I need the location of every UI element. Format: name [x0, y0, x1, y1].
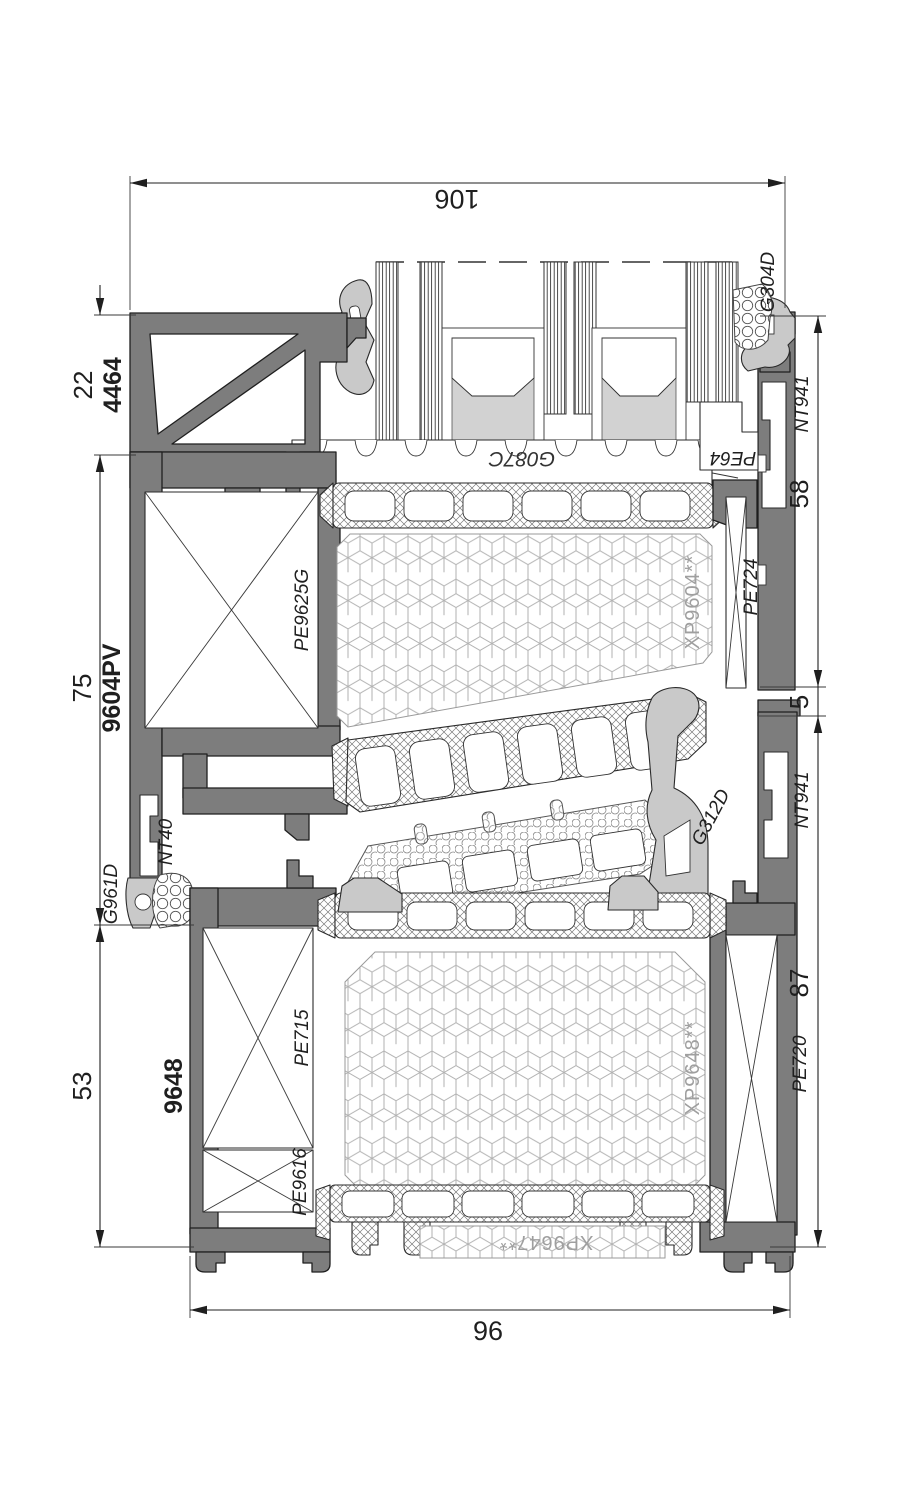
- frame-foot: [196, 1252, 225, 1272]
- label-xp9604: XP9604**: [682, 555, 704, 650]
- frame-foot: [766, 1252, 793, 1272]
- gasket-hole: [135, 894, 151, 910]
- dim-top: 106: [434, 184, 479, 214]
- insert-pe720: [726, 935, 777, 1222]
- sash-glass-strip: [686, 262, 708, 402]
- label-pe720: PE720: [790, 1035, 811, 1092]
- polyamide-foot: [666, 1222, 692, 1255]
- dim-left-top: 22: [68, 371, 98, 400]
- bar-end-clip: [710, 893, 726, 938]
- profile-section-drawing: 106 22 4464 75 9604PV 53 9648 58 5 87 96…: [0, 0, 900, 1500]
- profile-number-4464: 4464: [99, 357, 127, 413]
- bar-end-clip: [316, 1185, 330, 1240]
- foam-dab: [153, 873, 194, 928]
- profile-number-9648: 9648: [160, 1058, 188, 1114]
- frame-bottom-left: [190, 1228, 330, 1252]
- frame-up-hook: [287, 860, 313, 888]
- dim-left-mid: 75: [67, 674, 97, 703]
- label-pe9616: PE9616: [290, 1148, 311, 1216]
- label-xp9648: XP9648**: [682, 1021, 704, 1116]
- nt941-notch: [758, 455, 766, 472]
- label-g304d: G304D: [758, 252, 779, 312]
- label-nt941-bottom: NT941: [792, 771, 813, 828]
- frame-foot: [724, 1252, 752, 1272]
- bar-end-clip: [332, 738, 348, 806]
- foam-xp9648: [345, 952, 705, 1205]
- label-nt941-top: NT941: [792, 375, 813, 432]
- frame-inner-wall-right: [710, 903, 726, 1233]
- label-g087c: G087C: [488, 447, 555, 470]
- thermal-break-upper: [320, 480, 757, 926]
- bar-end-clip: [710, 1185, 724, 1240]
- label-pe724: PE724: [741, 558, 762, 615]
- dim-right-mid: 5: [784, 695, 814, 709]
- frame-foot: [303, 1252, 330, 1272]
- cad-sheet: 106 22 4464 75 9604PV 53 9648 58 5 87 96…: [0, 0, 900, 1500]
- sash-glass-strip: [376, 262, 398, 444]
- frame-hook: [285, 814, 309, 840]
- frame-lower-arm: [183, 788, 347, 814]
- label-pe9625g: PE9625G: [292, 569, 313, 651]
- sash-glass-strip: [420, 262, 442, 444]
- dim-left-bottom: 53: [67, 1072, 97, 1101]
- profile-number-9604pv: 9604PV: [98, 643, 126, 732]
- label-xp9647: XP9647**: [499, 1231, 594, 1253]
- label-nt40: NT40: [156, 818, 177, 865]
- label-g961d: G961D: [101, 864, 122, 924]
- label-pe64: PE64: [710, 447, 756, 468]
- dim-bottom: 96: [473, 1316, 503, 1346]
- sash-glass-strip: [544, 262, 566, 414]
- frame-mid-wall: [162, 726, 340, 756]
- dim-right-top: 58: [784, 480, 814, 509]
- polyamide-foot: [352, 1222, 378, 1255]
- frame-up-hook: [733, 881, 757, 903]
- dim-right-bottom: 87: [784, 969, 814, 998]
- bar-end-clip: [318, 893, 335, 938]
- label-pe715: PE715: [292, 1009, 313, 1066]
